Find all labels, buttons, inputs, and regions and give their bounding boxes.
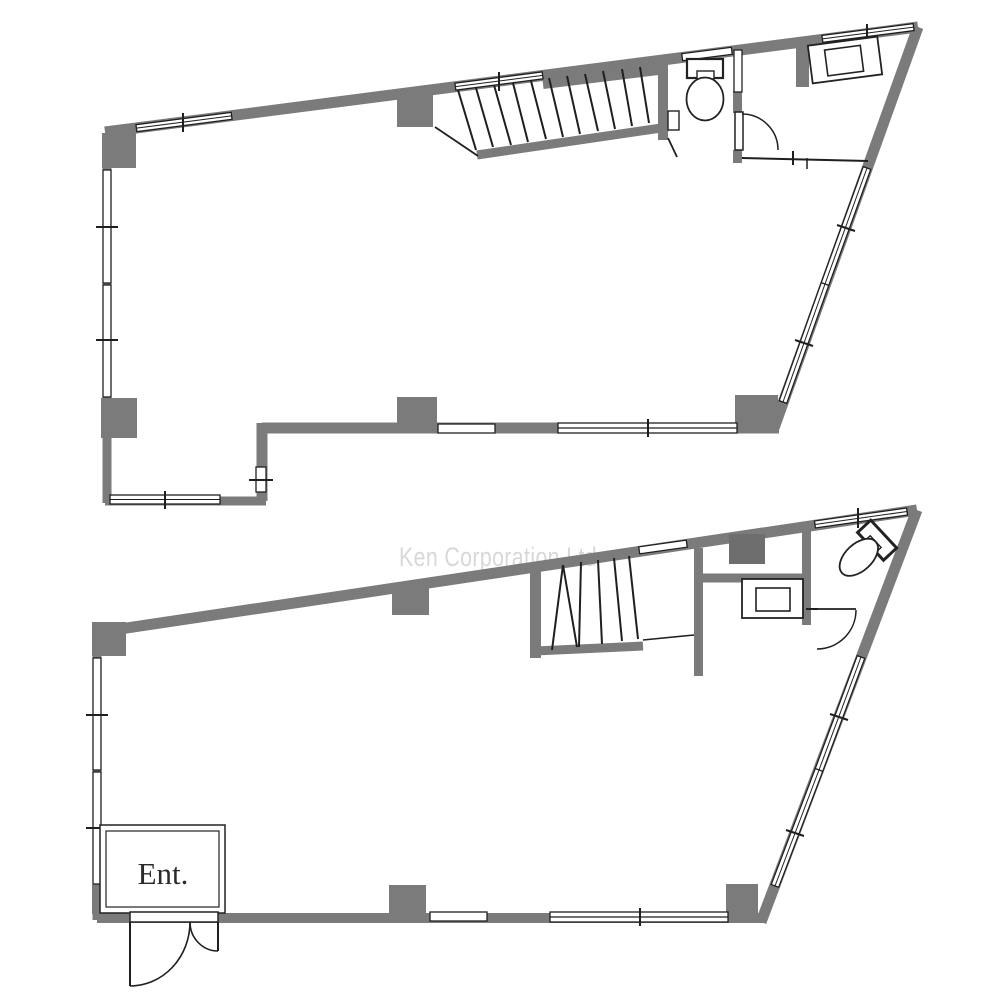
stair-edge xyxy=(435,127,478,156)
stair-edge xyxy=(643,635,694,640)
wall-pillar xyxy=(392,584,429,615)
washbasin-sink xyxy=(756,588,790,611)
floor-plan-drawing: Ken Corporation Ltd xyxy=(0,0,1000,1000)
door-swing-arc xyxy=(190,922,218,951)
window xyxy=(430,912,487,921)
floor-plan-page: Ken Corporation Ltd xyxy=(0,0,1000,1000)
wall-pillar xyxy=(726,884,758,923)
toilet-room xyxy=(668,50,778,157)
door-leaf xyxy=(735,112,743,150)
entrance-label: Ent. xyxy=(138,856,189,891)
wall-pillars xyxy=(101,95,778,438)
partition-wall xyxy=(734,50,742,92)
partition-line xyxy=(742,158,868,161)
window xyxy=(438,424,495,433)
washbasin-sink xyxy=(825,45,864,75)
door-swing-arc xyxy=(817,610,856,649)
wall-pillar xyxy=(102,133,136,168)
wall-pillar xyxy=(397,397,437,431)
exterior-walls xyxy=(105,27,918,503)
wall-pillar xyxy=(92,622,126,656)
door-swing-arc xyxy=(742,114,778,150)
windows xyxy=(96,24,914,509)
wall-pillar xyxy=(101,398,137,438)
duct-shaft xyxy=(729,534,765,564)
window xyxy=(779,167,871,404)
window xyxy=(771,656,865,888)
wall-pillar xyxy=(735,395,778,432)
wall-pillar xyxy=(389,885,426,914)
door-swing-arc xyxy=(130,922,190,986)
entrance-area: Ent. xyxy=(100,825,225,986)
toilet-bowl xyxy=(687,78,724,121)
toilet-icon xyxy=(668,59,724,130)
door-leaf xyxy=(668,138,677,157)
lower-floor-plan: Ent. xyxy=(86,508,917,986)
entrance-double-door xyxy=(130,922,218,986)
washbasin-icon xyxy=(808,37,882,84)
entrance-threshold xyxy=(130,912,218,922)
washbasin-icon xyxy=(742,579,803,618)
wall-pillar xyxy=(397,95,433,127)
toilet-paper-holder xyxy=(668,111,679,130)
upper-floor-plan xyxy=(96,24,918,509)
